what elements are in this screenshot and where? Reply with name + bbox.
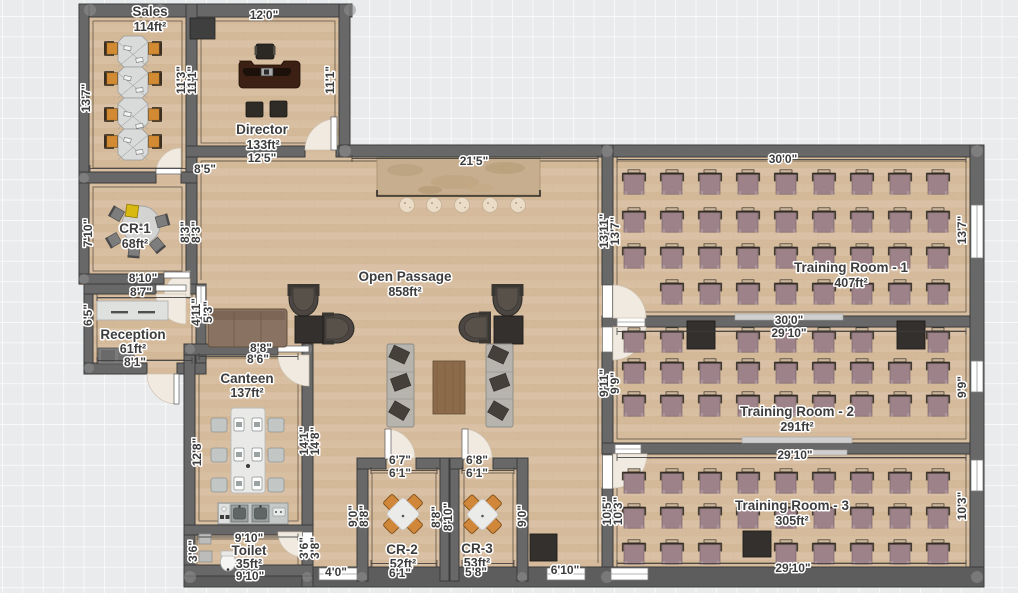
svg-text:6'1": 6'1" [389,566,411,580]
svg-text:14'8": 14'8" [308,427,322,456]
svg-text:Sales: Sales [132,4,167,19]
svg-text:6'7": 6'7" [389,453,411,467]
svg-text:13'7": 13'7" [79,84,93,113]
svg-text:Training Room - 3: Training Room - 3 [735,498,849,513]
svg-text:61ft²: 61ft² [120,342,146,356]
svg-text:13'7": 13'7" [608,217,622,246]
svg-text:8'8": 8'8" [357,505,371,527]
svg-text:305ft²: 305ft² [775,514,808,528]
svg-text:CR-1: CR-1 [119,221,151,236]
svg-text:12'8": 12'8" [190,438,204,467]
svg-text:6'10": 6'10" [551,563,580,577]
svg-text:8'5": 8'5" [194,162,216,176]
svg-text:12'5": 12'5" [248,151,277,165]
svg-text:407ft²: 407ft² [834,276,867,290]
svg-text:9'9": 9'9" [608,372,622,394]
svg-text:Toilet: Toilet [232,543,268,558]
svg-text:11'1": 11'1" [323,66,337,94]
svg-text:29'10": 29'10" [775,561,810,575]
svg-text:68ft²: 68ft² [122,237,148,251]
svg-text:11'1": 11'1" [185,66,199,94]
svg-text:8'10": 8'10" [129,271,158,285]
svg-text:Open Passage: Open Passage [358,269,452,284]
svg-text:29'10": 29'10" [771,326,806,340]
svg-text:9'9": 9'9" [955,376,969,398]
svg-text:6'1": 6'1" [466,466,488,480]
svg-text:133ft²: 133ft² [246,138,279,152]
svg-text:6'8": 6'8" [466,453,488,467]
svg-text:8'3": 8'3" [189,221,203,243]
svg-text:8'7": 8'7" [130,285,152,299]
svg-text:9'10": 9'10" [236,569,265,583]
svg-text:114ft²: 114ft² [134,20,167,34]
svg-text:Reception: Reception [100,327,165,342]
svg-text:4'0": 4'0" [325,565,347,579]
svg-text:30'0": 30'0" [775,313,804,327]
svg-text:12'0": 12'0" [250,8,279,22]
svg-text:13'7": 13'7" [955,216,969,245]
svg-text:30'0": 30'0" [769,152,798,166]
svg-text:Training Room - 1: Training Room - 1 [794,260,908,275]
svg-text:5'3": 5'3" [201,301,215,323]
svg-text:6'1": 6'1" [389,466,411,480]
svg-text:5'8": 5'8" [465,565,487,579]
svg-text:21'5": 21'5" [460,154,489,168]
svg-text:10'3": 10'3" [611,497,625,526]
svg-text:10'3": 10'3" [955,492,969,521]
svg-text:Director: Director [236,122,289,137]
svg-text:137ft²: 137ft² [230,386,263,400]
svg-text:9'0": 9'0" [515,505,529,527]
svg-text:291ft²: 291ft² [780,420,813,434]
svg-text:CR-3: CR-3 [461,541,493,556]
svg-text:3'6": 3'6" [186,540,200,562]
svg-text:9'10": 9'10" [235,531,264,545]
svg-text:Canteen: Canteen [220,371,273,386]
svg-text:CR-2: CR-2 [386,542,418,557]
svg-text:6'5": 6'5" [81,304,95,326]
svg-text:858ft²: 858ft² [388,285,421,299]
svg-text:Training Room - 2: Training Room - 2 [740,404,854,419]
svg-text:8'1": 8'1" [124,355,146,369]
svg-text:29'10": 29'10" [777,448,812,462]
svg-text:8'10": 8'10" [441,503,455,532]
svg-text:8'6": 8'6" [247,352,269,366]
svg-text:7'10": 7'10" [81,219,95,248]
svg-text:3'8": 3'8" [308,537,322,559]
